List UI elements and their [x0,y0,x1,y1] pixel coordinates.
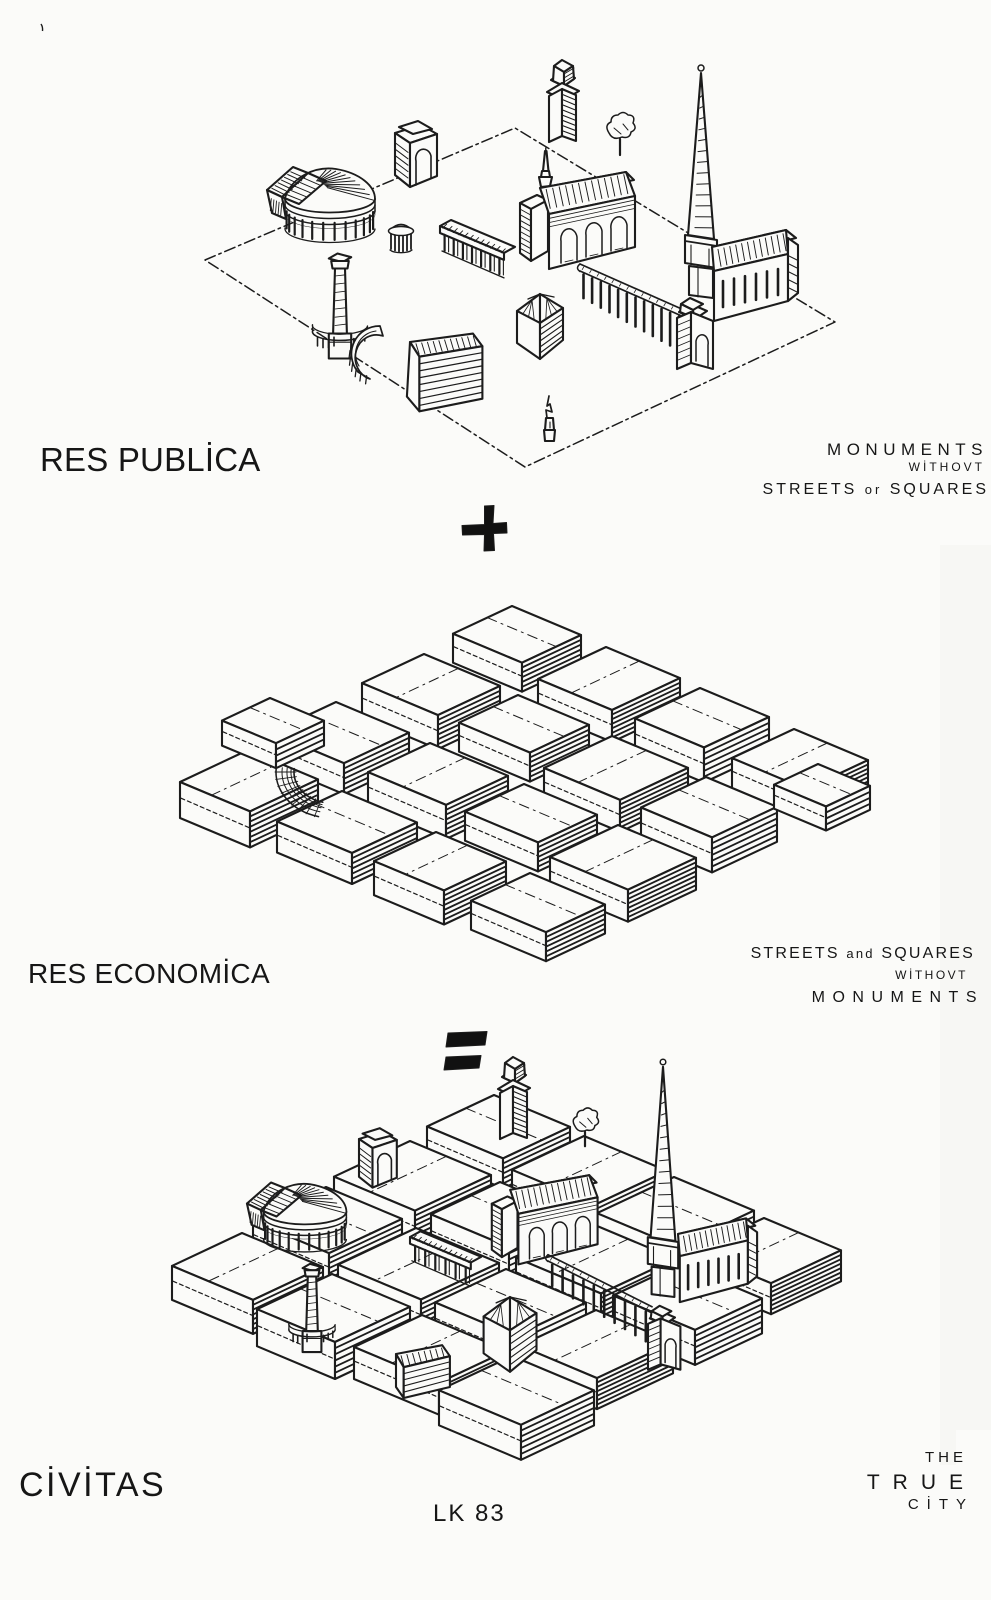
svg-text:CİTY: CİTY [908,1495,974,1513]
svg-text:WİTHOVT: WİTHOVT [895,968,968,982]
svg-text:LK 83: LK 83 [433,1500,506,1527]
svg-text:STREETS and SQUARES: STREETS and SQUARES [751,945,975,962]
svg-text:THE: THE [925,1449,967,1466]
svg-text:STREETS or SQUARES: STREETS or SQUARES [763,481,989,498]
svg-text:MONUMENTS: MONUMENTS [827,440,988,459]
svg-text:WİTHOVT: WİTHOVT [909,460,985,474]
svg-text:RES ECONOMİCA: RES ECONOMİCA [28,958,270,989]
svg-text:MONUMENTS: MONUMENTS [812,989,984,1006]
svg-text:TRUE: TRUE [867,1471,976,1494]
svg-text:CİVİTAS: CİVİTAS [19,1466,166,1504]
svg-text:RES PUBLİCA: RES PUBLİCA [40,441,260,478]
